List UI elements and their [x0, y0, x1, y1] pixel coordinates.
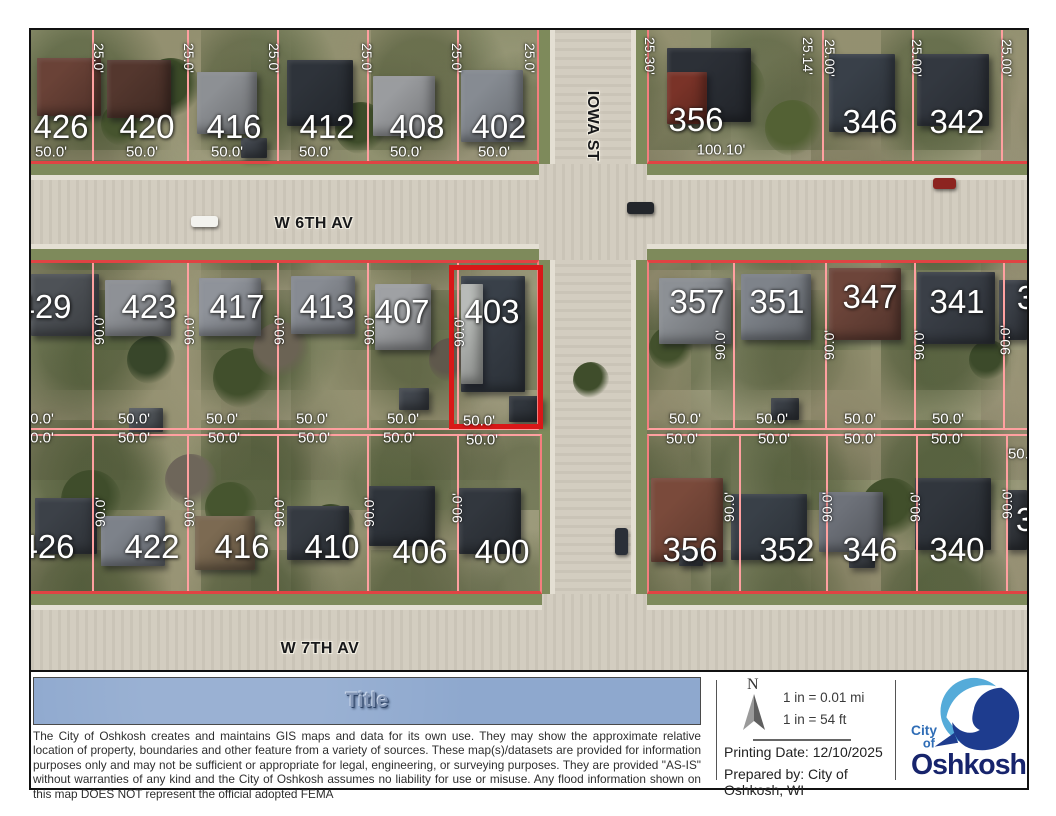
house-number-label: 429	[31, 288, 72, 326]
dimension-label: 50.0'	[466, 432, 498, 449]
dimension-label: 50.0'	[211, 144, 243, 161]
parcel-line	[277, 263, 279, 428]
dimension-label: 90.0'	[821, 330, 837, 360]
dimension-label: 50.0'	[118, 430, 150, 447]
dimension-label: 50.0'	[844, 411, 876, 428]
house-number-label: 3	[1016, 501, 1027, 539]
map-footer: Title The City of Oshkosh creates and ma…	[31, 672, 1027, 786]
dimension-label: 25.0'	[359, 43, 375, 73]
dimension-label: 50.0'	[206, 411, 238, 428]
dimension-label: 90.0'	[181, 497, 197, 527]
house-number-label: 400	[474, 533, 529, 571]
dimension-label: 90.0'	[92, 497, 108, 527]
house-number-label: 410	[304, 528, 359, 566]
dimension-label: 90.0'	[999, 489, 1015, 519]
dimension-label: 25.30'	[642, 37, 658, 75]
house-number-label: 342	[929, 103, 984, 141]
dimension-label: 50.0'	[844, 431, 876, 448]
street-name-label: W 7TH AV	[281, 640, 360, 658]
parcel-line	[733, 263, 735, 428]
dimension-label: 0.0'	[31, 430, 54, 447]
dimension-label: 50.0'	[1008, 446, 1027, 463]
dimension-label: 50.0'	[35, 144, 67, 161]
dimension-label: 90.0'	[181, 315, 197, 345]
printing-date: Printing Date: 12/10/2025	[724, 744, 883, 760]
house-number-label: 340	[929, 531, 984, 569]
sidewalk-terrace-strip	[539, 30, 556, 164]
dimension-label: 90.0'	[451, 317, 467, 347]
print-map-page: 4264204164124084023563463424294234174134…	[0, 0, 1056, 816]
sidewalk-terrace-strip	[31, 594, 542, 611]
prepared-by: Prepared by: City of Oshkosh, WI	[724, 766, 895, 798]
dimension-label: 25.00'	[909, 39, 925, 77]
dimension-label: 90.0'	[271, 497, 287, 527]
sidewalk-terrace-strip	[630, 260, 647, 594]
north-arrow-icon	[741, 693, 767, 731]
dimension-label: 90.0'	[907, 492, 923, 522]
parcel-line	[92, 263, 94, 428]
house-number-label: 412	[299, 108, 354, 146]
house-number-label: 351	[749, 283, 804, 321]
dimension-label: 50.0'	[296, 411, 328, 428]
sidewalk-terrace-strip	[647, 594, 1027, 611]
dimension-label: 50.0'	[387, 411, 419, 428]
dimension-label: 90.0'	[271, 315, 287, 345]
logo-oshkosh-text: Oshkosh	[911, 749, 1026, 781]
dimension-label: 90.0'	[911, 330, 927, 360]
dimension-label: 50.0'	[932, 411, 964, 428]
scale-panel: N 1 in = 0.01 mi 1 in = 54 ft Printing D…	[716, 680, 896, 780]
parcel-line	[187, 263, 189, 428]
house-number-label: 423	[121, 288, 176, 326]
dimension-label: 100.10'	[697, 142, 746, 159]
street-name-label: IOWA ST	[583, 91, 601, 161]
scale-miles: 1 in = 0.01 mi	[783, 690, 864, 705]
dimension-label: 50.0'	[118, 411, 150, 428]
dimension-label: 50.0'	[756, 411, 788, 428]
north-label: N	[747, 676, 759, 694]
sidewalk-terrace-strip	[31, 243, 539, 260]
car	[627, 202, 654, 214]
city-of-oshkosh-logo: City of Oshkosh	[909, 674, 1027, 784]
dimension-label: 50.0'	[208, 430, 240, 447]
dimension-label: 25.00'	[999, 39, 1015, 77]
house-number-label: 356	[662, 531, 717, 569]
house-number-label: 416	[206, 108, 261, 146]
car	[933, 178, 956, 189]
tree-canopy	[573, 362, 609, 398]
house-number-label: 346	[842, 103, 897, 141]
dimension-label: 25.0'	[266, 43, 282, 73]
house-number-label: 422	[124, 528, 179, 566]
house-number-label: 3	[1017, 279, 1027, 317]
dimension-label: 90.0'	[449, 493, 465, 523]
car	[615, 528, 628, 555]
house-number-label: 402	[471, 108, 526, 146]
dimension-label: 50.0'	[478, 144, 510, 161]
dimension-label: 50.0'	[666, 431, 698, 448]
disclaimer-text: The City of Oshkosh creates and maintain…	[33, 729, 701, 801]
dimension-label: 25.0'	[449, 43, 465, 73]
sidewalk-terrace-strip	[31, 164, 539, 181]
car	[191, 216, 218, 227]
sidewalk-terrace-strip	[647, 164, 1027, 181]
dimension-label: 50.0'	[463, 413, 495, 430]
dimension-label: 0.0'	[31, 411, 54, 428]
house-number-label: 403	[464, 293, 519, 331]
house-number-label: 416	[214, 528, 269, 566]
page-frame: 4264204164124084023563463424294234174134…	[29, 28, 1029, 790]
dimension-label: 50.0'	[126, 144, 158, 161]
house-number-label: 413	[299, 288, 354, 326]
dimension-label: 90.0'	[361, 315, 377, 345]
dimension-label: 50.0'	[383, 430, 415, 447]
house-number-label: 356	[668, 101, 723, 139]
house-number-label: 341	[929, 283, 984, 321]
dimension-label: 50.0'	[390, 144, 422, 161]
dimension-label: 25.0'	[522, 43, 538, 73]
dimension-label: 90.0'	[721, 492, 737, 522]
dimension-label: 50.0'	[669, 411, 701, 428]
house-number-label: 406	[392, 533, 447, 571]
dimension-label: 25.14'	[800, 37, 816, 75]
street-name-label: W 6TH AV	[275, 215, 354, 233]
house-number-label: 426	[33, 108, 88, 146]
dimension-label: 50.0'	[299, 144, 331, 161]
scale-feet: 1 in = 54 ft	[783, 712, 846, 727]
dimension-label: 90.0'	[361, 497, 377, 527]
house-number-label: 420	[119, 108, 174, 146]
house-number-label: 357	[669, 283, 724, 321]
parcel-line	[367, 263, 369, 428]
house-number-label: 408	[389, 108, 444, 146]
dimension-label: 90.0'	[819, 492, 835, 522]
dimension-label: 25.0'	[181, 43, 197, 73]
dimension-label: 25.00'	[822, 39, 838, 77]
parcel-block	[647, 434, 1027, 594]
house-number-label: 346	[842, 531, 897, 569]
dimension-label: 25.0'	[91, 43, 107, 73]
house-number-label: 417	[209, 288, 264, 326]
wave-icon	[935, 678, 1020, 750]
house-number-label: 426	[31, 528, 75, 566]
dimension-label: 50.0'	[931, 431, 963, 448]
dimension-label: 50.0'	[758, 431, 790, 448]
house-number-label: 352	[759, 531, 814, 569]
dimension-label: 50.0'	[298, 430, 330, 447]
dimension-label: 90.0'	[712, 330, 728, 360]
dimension-label: 90.0'	[91, 315, 107, 345]
sidewalk-terrace-strip	[647, 243, 1027, 260]
house-number-label: 347	[842, 278, 897, 316]
highlighted-parcel-outline	[449, 265, 543, 429]
scale-divider-line	[753, 739, 851, 741]
house-number-label: 407	[374, 293, 429, 331]
dimension-label: 90.0'	[997, 325, 1013, 355]
parcel-line	[739, 436, 741, 591]
map-title: Title	[346, 689, 389, 713]
map-title-bar: Title	[33, 677, 701, 725]
aerial-parcel-map: 4264204164124084023563463424294234174134…	[31, 30, 1027, 672]
